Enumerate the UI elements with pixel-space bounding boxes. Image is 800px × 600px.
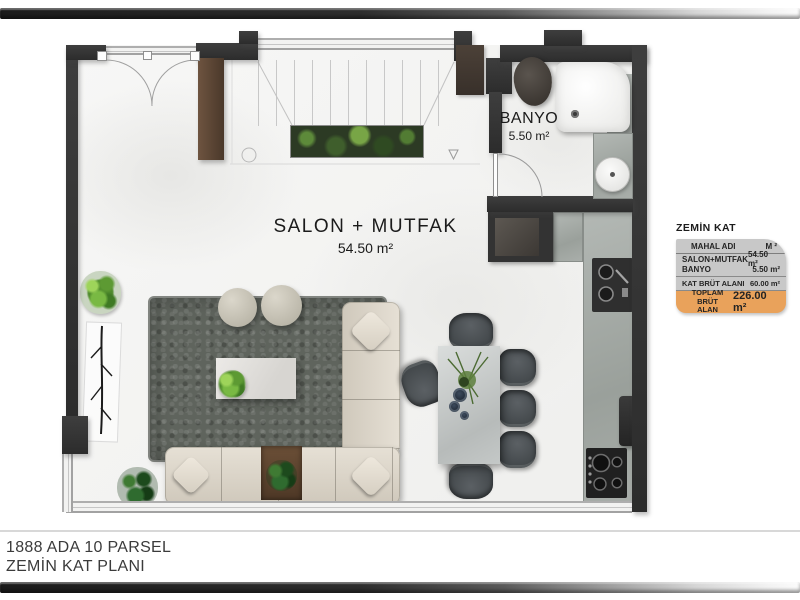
door-jamb (143, 51, 152, 60)
plate (453, 388, 467, 402)
total-label-line1: TOPLAM BRÜT (692, 288, 724, 306)
cooktop (586, 448, 627, 498)
row-label: SALON+MUTFAK (682, 255, 748, 264)
total-label: TOPLAM BRÜT ALAN (682, 289, 733, 313)
salon-label: SALON + MUTFAK 54.50 m² (268, 216, 463, 256)
pouf (261, 285, 302, 326)
stair-side-wall (456, 45, 484, 95)
bathroom-door-leaf (493, 153, 498, 197)
dining-chair (499, 431, 536, 468)
dining-chair (499, 349, 536, 386)
total-value: 226.00 m² (733, 290, 780, 313)
entry-door-swing (100, 52, 200, 110)
row-value: 5.50 m² (752, 265, 780, 274)
stair-planter (290, 125, 424, 158)
bathroom-left-wall-pier (486, 58, 512, 94)
footer-divider (0, 530, 800, 532)
bottom-window-wall (66, 501, 632, 513)
sink-drain (610, 172, 615, 177)
banyo-room-name: BANYO (492, 110, 566, 128)
wood-partition (198, 58, 224, 160)
total-label-line2: ALAN (697, 305, 718, 313)
parcel-label: 1888 ADA 10 PARSEL (6, 539, 171, 557)
top-mid-wall-cap (239, 31, 258, 44)
pouf (218, 288, 257, 327)
info-table-title: ZEMİN KAT (676, 222, 736, 234)
dining-chair (499, 390, 536, 427)
table-row: SALON+MUTFAK 54.50 m² (676, 254, 786, 264)
subtotal-label: KAT BRÜT ALANI (682, 279, 745, 288)
floor-plan-page: { "plan": { "salon": { "name": "SALON + … (0, 0, 800, 600)
subtotal-value: 60.00 m² (750, 279, 780, 288)
left-wall-pier (62, 416, 88, 454)
table-centerpiece-plant (445, 350, 491, 406)
plate (460, 411, 469, 420)
bathroom-top-wall-cap (544, 30, 582, 46)
row-label: BANYO (682, 265, 711, 274)
top-window (258, 38, 454, 50)
kitchen-counter (553, 212, 583, 262)
console-plant (266, 460, 297, 491)
kitchen-sink-unit (592, 258, 633, 312)
coffee-table-plant (218, 370, 246, 398)
total-row: TOPLAM BRÜT ALAN 226.00 m² (676, 291, 786, 313)
salon-room-name: SALON + MUTFAK (268, 216, 463, 238)
salon-room-area: 54.50 m² (268, 240, 463, 256)
left-corner-window (62, 454, 73, 512)
dining-chair (449, 313, 493, 349)
dining-chair (449, 463, 493, 499)
refrigerator-top (495, 218, 539, 256)
banyo-room-area: 5.50 m² (492, 129, 566, 143)
table-row: BANYO 5.50 m² (676, 264, 786, 274)
bottom-metallic-bar (0, 582, 800, 593)
plate (449, 401, 460, 412)
banyo-label: BANYO 5.50 m² (492, 110, 566, 143)
shower-tray (556, 62, 630, 132)
shower-drain (571, 110, 579, 118)
potted-plant (80, 271, 121, 314)
area-info-table: MAHAL ADI M ² SALON+MUTFAK 54.50 m² BANY… (676, 239, 786, 313)
refrigerator (488, 212, 553, 262)
plan-title: ZEMİN KAT PLANI (6, 558, 145, 576)
right-wall (632, 45, 647, 512)
door-jamb (190, 51, 200, 61)
top-metallic-bar (0, 8, 800, 19)
header-name-col: MAHAL ADI (691, 242, 735, 251)
left-wall (66, 46, 78, 418)
door-jamb (97, 51, 107, 61)
decorative-branch (86, 324, 118, 436)
